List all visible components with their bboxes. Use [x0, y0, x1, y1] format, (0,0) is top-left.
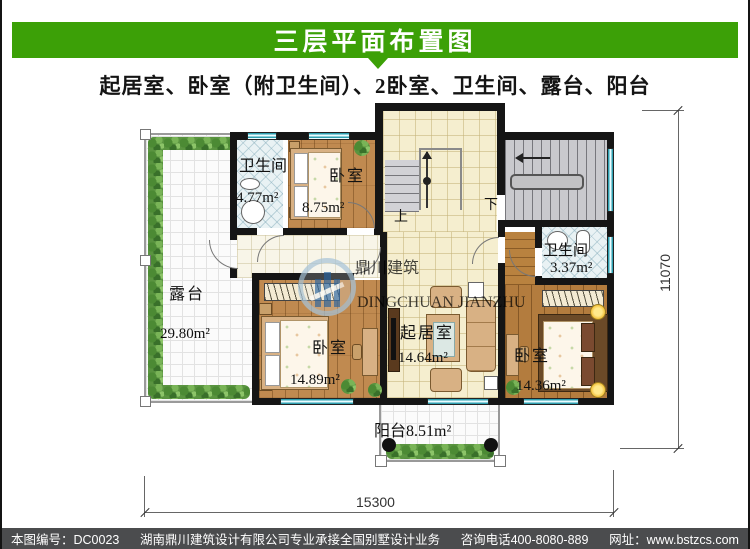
- tv: [391, 318, 396, 360]
- floor-plan-page: 三层平面布置图 起居室、卧室（附卫生间）、2卧室、卫生间、露台、阳台: [0, 0, 750, 549]
- window: [247, 132, 277, 140]
- nightstand: [259, 303, 272, 315]
- room-label-bed-top: 卧室: [329, 168, 365, 186]
- balcony-plants: [386, 444, 494, 459]
- terrace-plants-bottom: [148, 385, 250, 399]
- wall-segment: [252, 273, 354, 280]
- dim-extension-line: [613, 470, 614, 517]
- stair-down-label: 下: [484, 198, 498, 213]
- footer-company: 湖南鼎川建筑设计有限公司专业承接全国别墅设计业务: [140, 529, 440, 548]
- bedside-lamp: [590, 304, 606, 320]
- dim-depth-value: 11070: [657, 254, 673, 292]
- room-label-bed-left: 卧室: [312, 340, 348, 358]
- footer-phone: 咨询电话400-8080-889: [461, 529, 589, 548]
- page-title: 三层平面布置图: [273, 22, 476, 58]
- wall-segment: [230, 228, 257, 235]
- wall-segment: [374, 228, 383, 235]
- window: [308, 132, 350, 140]
- area-label-terrace: 29.80m²: [160, 326, 210, 343]
- desk: [362, 328, 378, 376]
- title-banner: 三层平面布置图: [12, 22, 738, 58]
- armchair: [430, 286, 462, 308]
- footer-website: 网址：www.bstzcs.com: [609, 529, 739, 548]
- wall-segment: [375, 103, 505, 111]
- wardrobe: [264, 283, 340, 301]
- room-label-bath-right: 卫生间: [543, 243, 588, 260]
- room-label-balcony: 阳台8.51m²: [374, 423, 451, 441]
- wall-segment: [498, 263, 505, 405]
- wall-segment: [535, 227, 542, 248]
- bedside-lamp: [590, 382, 606, 398]
- room-label-terrace: 露台: [169, 286, 205, 304]
- plant: [368, 383, 382, 397]
- room-label-bed-right: 卧室: [514, 348, 550, 366]
- balcony-post: [494, 455, 506, 467]
- dim-extension-line: [620, 448, 684, 449]
- chair: [352, 344, 362, 360]
- window: [607, 148, 614, 212]
- side-table: [484, 376, 498, 390]
- balcony-post: [375, 455, 387, 467]
- terrace-plants-left: [148, 137, 163, 399]
- footer-bar: 本图编号：DC0023 湖南鼎川建筑设计有限公司专业承接全国别墅设计业务 咨询电…: [2, 528, 748, 549]
- area-label-bed-left: 14.89m²: [290, 372, 340, 389]
- plant: [354, 140, 370, 156]
- footer-drawing-number: 本图编号：DC0023: [11, 529, 119, 548]
- wall-segment: [230, 268, 237, 278]
- room-summary-subtitle: 起居室、卧室（附卫生间）、2卧室、卫生间、露台、阳台: [2, 70, 748, 100]
- area-label-bed-top: 8.75m²: [302, 200, 344, 217]
- inner-stair-steps: [385, 160, 419, 212]
- window: [607, 236, 614, 274]
- wall-segment: [283, 228, 347, 235]
- balcony-door-window: [427, 398, 489, 405]
- wall-segment: [498, 227, 505, 237]
- stair-direction-dot: [423, 177, 431, 185]
- room-label-living: 起居室: [400, 325, 454, 343]
- terrace-post: [140, 396, 151, 407]
- wall-segment: [497, 103, 505, 195]
- area-label-bath-top: 4.77m²: [236, 190, 278, 207]
- banner-pointer-triangle: [368, 58, 388, 69]
- armchair: [430, 368, 462, 392]
- window: [523, 398, 579, 405]
- sofa: [466, 300, 496, 372]
- wall-segment: [380, 232, 387, 405]
- sink: [240, 178, 260, 190]
- plant: [341, 379, 356, 394]
- dim-line-width: [144, 512, 614, 513]
- area-label-living: 14.64m²: [398, 350, 448, 367]
- balcony-name: 阳台: [374, 423, 406, 440]
- stairwell-arrowhead: [510, 153, 523, 163]
- area-label-bed-right: 14.36m²: [516, 378, 566, 395]
- balcony-column: [484, 438, 498, 452]
- room-label-bath-top: 卫生间: [239, 158, 287, 176]
- wall-segment: [535, 278, 614, 285]
- dim-line-depth: [678, 110, 679, 448]
- area-label-bath-right: 3.37m²: [550, 260, 592, 277]
- side-table: [468, 282, 484, 298]
- stair-up-label: 上: [394, 210, 408, 225]
- window: [280, 398, 354, 405]
- wall-segment: [375, 103, 383, 235]
- stairwell-railing: [510, 174, 584, 190]
- wall-segment: [252, 273, 259, 405]
- wall-segment: [230, 132, 237, 240]
- balcony-area: 8.51m²: [406, 423, 451, 440]
- dim-width-value: 15300: [356, 494, 395, 510]
- wall-segment: [498, 220, 614, 227]
- terrace-post: [140, 129, 151, 140]
- wall-segment: [505, 132, 614, 140]
- terrace-post: [140, 255, 151, 266]
- stair-up-arrowhead: [422, 146, 432, 159]
